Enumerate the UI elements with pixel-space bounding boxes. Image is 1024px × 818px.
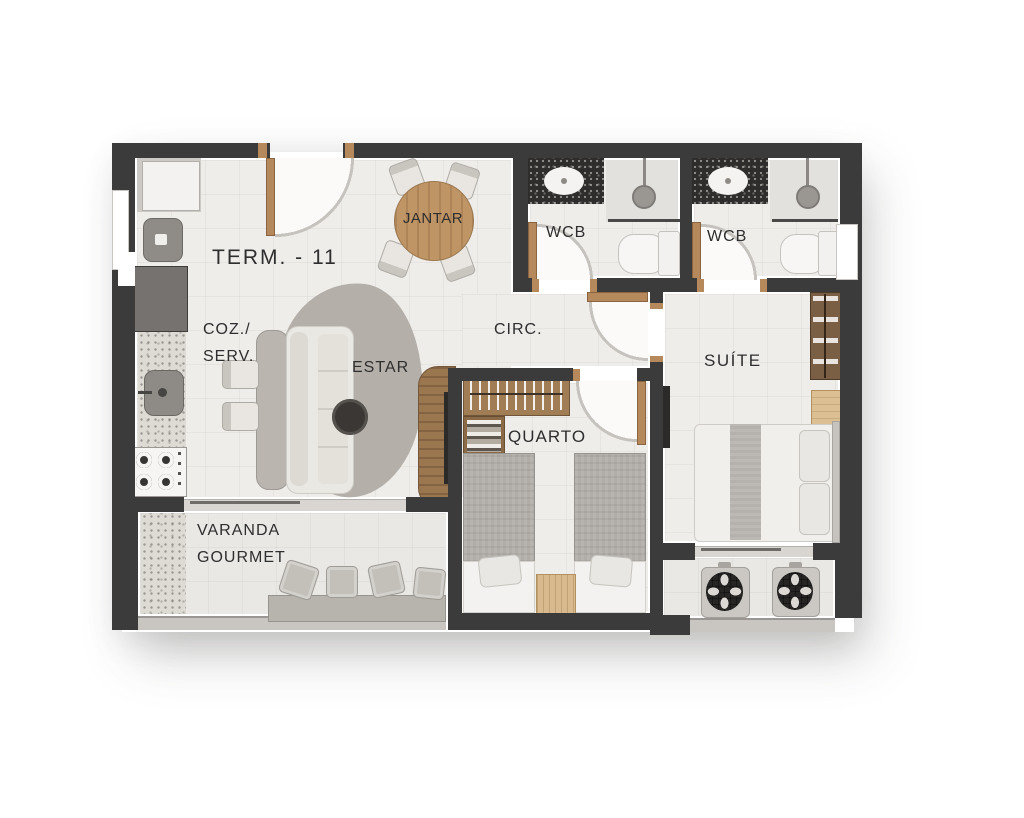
wall-left-varanda: [112, 505, 138, 630]
wall-bedroom-west: [448, 368, 462, 630]
shower-glass-wcb2: [772, 219, 838, 222]
kitchen-wall-recess: [118, 252, 135, 286]
console-chair: [222, 402, 259, 431]
twin-bed-1-pillow: [478, 554, 523, 588]
shower-glass-wcb1: [608, 219, 680, 222]
wall-bedroom-south: [448, 613, 662, 630]
wall-suite-west-b: [650, 362, 663, 545]
wall-balcony-east: [835, 545, 862, 618]
suite-jamb: [650, 356, 663, 362]
wall-south-wcb1-a: [513, 278, 532, 292]
room-label-wcb2: WCB: [707, 228, 747, 246]
room-label-living: ESTAR: [352, 359, 409, 377]
stove-burner: [136, 452, 152, 468]
room-label-kitchen-line2: SERV.: [203, 343, 254, 370]
wall-suite-south-a: [663, 543, 695, 560]
suite-door-leaf: [587, 292, 648, 302]
kitchen-faucet-arm: [138, 391, 152, 394]
wcb1-jamb: [590, 279, 597, 292]
wall-wcb1-wcb2: [680, 143, 692, 292]
toilet-tank-wcb1: [658, 231, 680, 276]
wcb2-jamb: [760, 279, 767, 292]
ac-fan: [777, 572, 813, 610]
wall-south-wcb2: [767, 278, 862, 292]
plan-title: TERM. - 11: [212, 246, 338, 270]
wall-varanda-north-b: [406, 497, 450, 512]
varanda-bench: [268, 595, 446, 622]
wall-bedroom-door-jamb: [637, 368, 650, 381]
coffee-table: [332, 399, 368, 435]
twin-bed-2-blanket: [574, 453, 646, 563]
room-label-kitchen-line1: COZ./: [203, 316, 254, 343]
suite-jamb: [650, 303, 663, 309]
room-label-varanda-line2: GOURMET: [197, 544, 286, 571]
entry-door-leaf: [266, 158, 275, 236]
wcb1-jamb: [532, 279, 539, 292]
room-label-bedroom: QUARTO: [508, 427, 586, 447]
wall-top-right: [343, 143, 862, 158]
sink-drain-wcb1: [561, 178, 567, 184]
room-label-suite: SUÍTE: [704, 351, 762, 371]
suite-pillow: [799, 483, 830, 535]
room-label-kitchen: COZ./ SERV.: [203, 316, 254, 370]
wall-varanda-north-a: [130, 497, 184, 512]
wcb1-door-leaf: [528, 222, 537, 280]
console-table: [256, 330, 289, 490]
suite-sliding-door-glass: [701, 548, 781, 551]
stove-knobs: [178, 452, 181, 490]
wall-hall-wcb1: [513, 143, 528, 292]
bedroom-nightstand: [536, 574, 576, 618]
varanda-sliding-door-glass: [190, 501, 300, 504]
bedroom-jamb: [573, 369, 580, 381]
ac-valve: [718, 562, 731, 568]
shower-head-wcb2: [796, 185, 820, 209]
ac-fan: [706, 572, 743, 611]
varanda-counter: [141, 513, 186, 614]
sofa-backrest: [290, 332, 308, 486]
bedroom-door-leaf: [637, 381, 646, 445]
sink-drain-wcb2: [725, 178, 731, 184]
entry-jamb: [258, 143, 267, 158]
stove-burner: [158, 452, 174, 468]
room-label-dining: JANTAR: [396, 210, 470, 227]
suite-door-swing: [587, 302, 648, 363]
shower-stem-wcb1: [643, 158, 646, 188]
washer-counter: [130, 266, 188, 332]
laundry-tub-drain: [155, 234, 167, 245]
floorplan-canvas: TERM. - 11 JANTAR WCB WCB CIRC. COZ./ SE…: [0, 0, 1024, 818]
bedroom-wardrobe-rail: [470, 393, 563, 395]
wcb2-jamb: [697, 279, 704, 292]
suite-headboard: [832, 421, 840, 543]
suite-bed-runner: [730, 424, 761, 540]
wcb2-window: [836, 224, 858, 280]
wall-right: [840, 158, 862, 545]
stove-burner: [158, 474, 174, 490]
suite-wardrobe-rail: [824, 294, 826, 378]
room-label-varanda-line1: VARANDA: [197, 517, 286, 544]
wall-south-wcb1-b: [597, 278, 697, 292]
room-label-wcb1: WCB: [546, 224, 586, 242]
bar-stool: [326, 566, 358, 598]
bar-stool: [367, 560, 406, 599]
fridge: [142, 161, 200, 211]
twin-bed-2-pillow: [589, 554, 633, 588]
room-label-circulation: CIRC.: [494, 321, 543, 339]
wall-top-left: [112, 143, 270, 158]
wcb2-door-leaf: [692, 222, 701, 280]
kitchen-faucet: [158, 388, 167, 397]
shower-stem-wcb2: [806, 158, 809, 188]
ac-valve: [789, 562, 802, 568]
suite-pillow: [799, 430, 830, 482]
entry-jamb: [345, 143, 354, 158]
wall-balcony-west: [650, 545, 663, 618]
wall-bedroom-north: [448, 368, 573, 381]
bar-stool: [412, 566, 446, 600]
shower-head-wcb1: [632, 185, 656, 209]
tv-suite: [663, 386, 670, 448]
stove-burner: [136, 474, 152, 490]
bedroom-shelf-clothes: [467, 420, 501, 452]
entry-door-swing: [275, 158, 357, 240]
wall-balcony-corner: [650, 615, 690, 635]
room-label-varanda: VARANDA GOURMET: [197, 517, 286, 571]
twin-bed-1-blanket: [463, 453, 535, 563]
